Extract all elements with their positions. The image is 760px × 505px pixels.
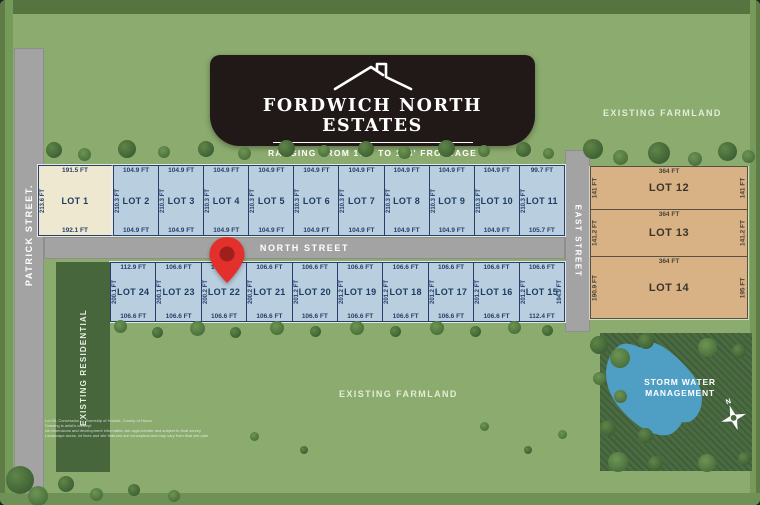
lot-17-rear-dim: 106.6 FT	[429, 313, 473, 320]
tree-icon	[600, 420, 616, 436]
lot-20-label: LOT 20	[299, 287, 331, 297]
tree-icon	[390, 326, 401, 337]
lot-4-front-dim: 104.9 FT	[204, 167, 248, 174]
north-street-road: NORTH STREET	[44, 237, 565, 259]
tree-icon	[90, 488, 103, 501]
lot-23-side-dim: 200.1 FT	[157, 274, 163, 310]
tree-icon	[638, 428, 653, 443]
lot-11-rear-dim: 105.7 FT	[520, 227, 564, 234]
lot-10-label: LOT 10	[481, 196, 513, 206]
lot-14[interactable]: 364 FT 190.9 FT 195 FT LOT 14	[590, 256, 748, 319]
lot-8[interactable]: 104.9 FT 210.3 FT LOT 8 104.9 FT	[384, 165, 430, 236]
lot-23[interactable]: 106.6 FT 200.1 FT LOT 23 106.6 FT	[155, 262, 201, 322]
house-roof-icon	[325, 61, 421, 91]
lot-4-rear-dim: 104.9 FT	[204, 227, 248, 234]
tree-icon	[128, 484, 140, 496]
tree-icon	[610, 348, 630, 368]
disclaimer-line: Landscape areas, lot lines and site feat…	[45, 433, 260, 438]
lot-19-front-dim: 106.6 FT	[338, 264, 382, 271]
tree-icon	[310, 326, 321, 337]
lot-4[interactable]: 104.9 FT 210.3 FT LOT 4 104.9 FT	[203, 165, 249, 236]
lot-3-front-dim: 104.9 FT	[159, 167, 203, 174]
lot-10[interactable]: 104.9 FT 210.3 FT LOT 10 104.9 FT	[474, 165, 520, 236]
tree-icon	[480, 422, 489, 431]
lot-2-rear-dim: 104.9 FT	[114, 227, 158, 234]
map-border-top	[0, 0, 760, 14]
lot-7-label: LOT 7	[348, 196, 375, 206]
lot-4-side-dim: 210.3 FT	[205, 183, 211, 219]
tree-icon	[558, 430, 567, 439]
compass-icon: N	[712, 395, 755, 438]
location-pin[interactable]	[207, 236, 247, 284]
tree-icon	[58, 476, 74, 492]
tree-icon	[238, 147, 251, 160]
tree-icon	[516, 142, 531, 157]
lot-1-label: LOT 1	[61, 196, 88, 206]
lot-20[interactable]: 106.6 FT 201.2 FT LOT 20 106.6 FT	[292, 262, 338, 322]
east-street-road: EAST STREET	[565, 150, 590, 332]
lot-13-left-dim: 141.2 FT	[592, 215, 599, 251]
lot-20-side-dim: 201.2 FT	[294, 274, 300, 310]
lot-17-front-dim: 106.6 FT	[429, 264, 473, 271]
lot-13[interactable]: 364 FT 141.2 FT 141.2 FT LOT 13	[590, 209, 748, 257]
existing-residential-zone: EXISTING RESIDENTIAL	[56, 262, 110, 472]
lot-5[interactable]: 104.9 FT 210.3 FT LOT 5 104.9 FT	[248, 165, 294, 236]
disclaimer-text: Lot 26, Concession C, Township of Howick…	[45, 418, 260, 438]
tree-icon	[270, 321, 284, 335]
tree-icon	[590, 336, 608, 354]
lot-7-front-dim: 104.9 FT	[339, 167, 383, 174]
lot-2-front-dim: 104.9 FT	[114, 167, 158, 174]
tree-icon	[350, 321, 364, 335]
tree-icon	[198, 141, 214, 157]
lot-15-front-dim: 106.6 FT	[520, 264, 564, 271]
lot-14-right-dim: 195 FT	[740, 270, 747, 306]
lot-15[interactable]: 106.6 FT 201.2 FT 194.9 FT LOT 15 112.4 …	[519, 262, 565, 322]
tree-icon	[593, 372, 606, 385]
lot-row-south: 112.9 FT 200.1 FT LOT 24 106.6 FT 106.6 …	[110, 262, 565, 322]
tree-icon	[608, 452, 628, 472]
tree-icon	[614, 390, 627, 403]
tree-icon	[158, 146, 170, 158]
lot-24-label: LOT 24	[117, 287, 149, 297]
lot-21-label: LOT 21	[253, 287, 285, 297]
tree-icon	[738, 452, 751, 465]
lot-21-side-dim: 200.2 FT	[248, 274, 254, 310]
lot-16-side-dim: 201.2 FT	[475, 274, 481, 310]
lot-8-label: LOT 8	[393, 196, 420, 206]
tree-icon	[478, 145, 490, 157]
storm-water-label: STORM WATER MANAGEMENT	[630, 377, 730, 399]
lot-24-front-dim: 112.9 FT	[111, 264, 155, 271]
lot-7-side-dim: 210.3 FT	[340, 183, 346, 219]
lot-8-rear-dim: 104.9 FT	[385, 227, 429, 234]
tree-icon	[742, 150, 755, 163]
lot-8-side-dim: 210.3 FT	[386, 183, 392, 219]
tree-icon	[118, 140, 136, 158]
lot-3-rear-dim: 104.9 FT	[159, 227, 203, 234]
lot-23-label: LOT 23	[162, 287, 194, 297]
lot-19-rear-dim: 106.6 FT	[338, 313, 382, 320]
tree-icon	[470, 326, 481, 337]
tree-icon	[300, 446, 308, 454]
lot-6-rear-dim: 104.9 FT	[294, 227, 338, 234]
lot-9-side-dim: 210.3 FT	[431, 183, 437, 219]
lot-2-side-dim: 210.3 FT	[115, 183, 121, 219]
lot-15-rear-dim: 112.4 FT	[520, 313, 564, 320]
lot-18-side-dim: 201.2 FT	[384, 274, 390, 310]
lot-row-north: 191.5 FT 213.6 FT LOT 1 192.1 FT 104.9 F…	[38, 165, 565, 236]
lot-5-side-dim: 210.3 FT	[250, 183, 256, 219]
lot-24-rear-dim: 106.6 FT	[111, 313, 155, 320]
lot-9-label: LOT 9	[438, 196, 465, 206]
lot-22-rear-dim: 106.6 FT	[202, 313, 246, 320]
lot-17-label: LOT 17	[435, 287, 467, 297]
farmland-label-top: EXISTING FARMLAND	[603, 108, 722, 118]
lot-2-label: LOT 2	[123, 196, 150, 206]
lot-10-front-dim: 104.9 FT	[475, 167, 519, 174]
tree-icon	[168, 490, 180, 502]
lot-23-rear-dim: 106.6 FT	[156, 313, 200, 320]
tree-icon	[358, 141, 374, 157]
lot-17-side-dim: 201.2 FT	[430, 274, 436, 310]
lot-21-rear-dim: 106.6 FT	[247, 313, 291, 320]
lot-9[interactable]: 104.9 FT 210.3 FT LOT 9 104.9 FT	[429, 165, 475, 236]
lot-9-rear-dim: 104.9 FT	[430, 227, 474, 234]
tree-icon	[318, 145, 330, 157]
tree-icon	[250, 432, 259, 441]
lot-5-label: LOT 5	[258, 196, 285, 206]
lot-6-side-dim: 210.3 FT	[295, 183, 301, 219]
lot-13-front-dim: 364 FT	[591, 211, 747, 218]
farmland-label-bottom: EXISTING FARMLAND	[339, 389, 458, 399]
lot-8-front-dim: 104.9 FT	[385, 167, 429, 174]
lot-19[interactable]: 106.6 FT 201.2 FT LOT 19 106.6 FT	[337, 262, 383, 322]
lot-1-front-dim: 191.5 FT	[39, 167, 111, 174]
tree-icon	[648, 142, 670, 164]
tree-icon	[78, 148, 91, 161]
lot-13-right-dim: 141.2 FT	[740, 215, 747, 251]
tree-icon	[152, 327, 163, 338]
tree-icon	[638, 333, 654, 349]
tree-icon	[508, 321, 521, 334]
lot-1-rear-dim: 192.1 FT	[39, 227, 111, 234]
lot-19-side-dim: 201.2 FT	[339, 274, 345, 310]
tree-icon	[583, 139, 603, 159]
lot-24[interactable]: 112.9 FT 200.1 FT LOT 24 106.6 FT	[110, 262, 156, 322]
lot-21[interactable]: 106.6 FT 200.2 FT LOT 21 106.6 FT	[246, 262, 292, 322]
map-border-left	[0, 0, 13, 505]
lot-10-side-dim: 210.3 FT	[476, 183, 482, 219]
lot-16-label: LOT 16	[480, 287, 512, 297]
lot-16[interactable]: 106.6 FT 201.2 FT LOT 16 106.6 FT	[473, 262, 519, 322]
tree-icon	[278, 140, 295, 157]
existing-residential-label: EXISTING RESIDENTIAL	[79, 309, 88, 426]
lot-6-label: LOT 6	[303, 196, 330, 206]
lot-16-front-dim: 106.6 FT	[474, 264, 518, 271]
lot-13-label: LOT 13	[649, 227, 689, 239]
lot-15-side-dim: 201.2 FT	[521, 274, 527, 310]
lot-12[interactable]: 364 FT 141 FT 141 FT LOT 12	[590, 166, 748, 210]
lot-7[interactable]: 104.9 FT 210.3 FT LOT 7 104.9 FT	[338, 165, 384, 236]
lot-12-right-dim: 141 FT	[740, 170, 747, 206]
tree-icon	[543, 148, 554, 159]
lot-3-label: LOT 3	[168, 196, 195, 206]
tree-icon	[698, 454, 716, 472]
lot-18-label: LOT 18	[389, 287, 421, 297]
lot-14-label: LOT 14	[649, 282, 689, 294]
tree-icon	[190, 321, 205, 336]
lot-18-front-dim: 106.6 FT	[383, 264, 427, 271]
tree-icon	[688, 152, 702, 166]
lot-15-label: LOT 15	[526, 287, 558, 297]
lot-20-front-dim: 106.6 FT	[293, 264, 337, 271]
lot-24-side-dim: 200.1 FT	[112, 274, 118, 310]
lot-11-label: LOT 11	[526, 196, 558, 206]
lot-23-front-dim: 106.6 FT	[156, 264, 200, 271]
lot-5-rear-dim: 104.9 FT	[249, 227, 293, 234]
lot-14-left-dim: 190.9 FT	[592, 270, 599, 306]
tree-icon	[398, 146, 411, 159]
lot-21-front-dim: 106.6 FT	[247, 264, 291, 271]
lot-4-label: LOT 4	[213, 196, 240, 206]
lot-6[interactable]: 104.9 FT 210.3 FT LOT 6 104.9 FT	[293, 165, 339, 236]
tree-icon	[28, 486, 48, 505]
tree-icon	[718, 142, 737, 161]
lot-12-label: LOT 12	[649, 182, 689, 194]
tree-icon	[732, 344, 746, 358]
lot-6-front-dim: 104.9 FT	[294, 167, 338, 174]
east-street-label: EAST STREET	[573, 205, 582, 278]
tree-icon	[542, 325, 553, 336]
tree-icon	[613, 150, 628, 165]
site-map: EXISTING FARMLAND EXISTING FARMLAND PATR…	[0, 0, 760, 505]
project-title: FORDWICH NORTH ESTATES	[210, 96, 535, 136]
lot-22-label: LOT 22	[208, 287, 240, 297]
lot-3[interactable]: 104.9 FT 210.3 FT LOT 3 104.9 FT	[158, 165, 204, 236]
lot-row-east: 364 FT 141 FT 141 FT LOT 12 364 FT 141.2…	[590, 167, 748, 319]
tree-icon	[648, 456, 663, 471]
lot-17[interactable]: 106.6 FT 201.2 FT LOT 17 106.6 FT	[428, 262, 474, 322]
lot-2[interactable]: 104.9 FT 210.3 FT LOT 2 104.9 FT	[113, 165, 159, 236]
lot-19-label: LOT 19	[344, 287, 376, 297]
patrick-street-road: PATRICK STREET.	[14, 48, 44, 494]
lot-11[interactable]: 99.7 FT 210.3 FT LOT 11 105.7 FT	[519, 165, 565, 236]
patrick-street-label: PATRICK STREET.	[24, 184, 34, 286]
lot-18-rear-dim: 106.6 FT	[383, 313, 427, 320]
lot-11-front-dim: 99.7 FT	[520, 167, 564, 174]
lot-1[interactable]: 191.5 FT 213.6 FT LOT 1 192.1 FT	[38, 165, 114, 236]
north-street-label: NORTH STREET	[260, 243, 349, 253]
tree-icon	[46, 142, 62, 158]
lot-12-left-dim: 141 FT	[592, 170, 599, 206]
lot-10-rear-dim: 104.9 FT	[475, 227, 519, 234]
tree-icon	[230, 327, 241, 338]
lot-1-side-dim: 213.6 FT	[40, 183, 46, 219]
tree-icon	[524, 446, 532, 454]
lot-11-side-dim: 210.3 FT	[521, 183, 527, 219]
lot-9-front-dim: 104.9 FT	[430, 167, 474, 174]
lot-15-right-dim: 194.9 FT	[557, 274, 563, 310]
lot-5-front-dim: 104.9 FT	[249, 167, 293, 174]
lot-20-rear-dim: 106.6 FT	[293, 313, 337, 320]
project-banner: FORDWICH NORTH ESTATES RANGING FROM 104'…	[210, 55, 535, 146]
lot-18[interactable]: 106.6 FT 201.2 FT LOT 18 106.6 FT	[382, 262, 428, 322]
tree-icon	[430, 321, 444, 335]
lot-14-front-dim: 364 FT	[591, 258, 747, 265]
lot-3-side-dim: 210.3 FT	[160, 183, 166, 219]
map-border-bottom	[0, 493, 760, 505]
lot-16-rear-dim: 106.6 FT	[474, 313, 518, 320]
lot-7-rear-dim: 104.9 FT	[339, 227, 383, 234]
tree-icon	[698, 338, 717, 357]
tree-icon	[114, 320, 127, 333]
lot-12-front-dim: 364 FT	[591, 168, 747, 175]
tree-icon	[438, 140, 455, 157]
